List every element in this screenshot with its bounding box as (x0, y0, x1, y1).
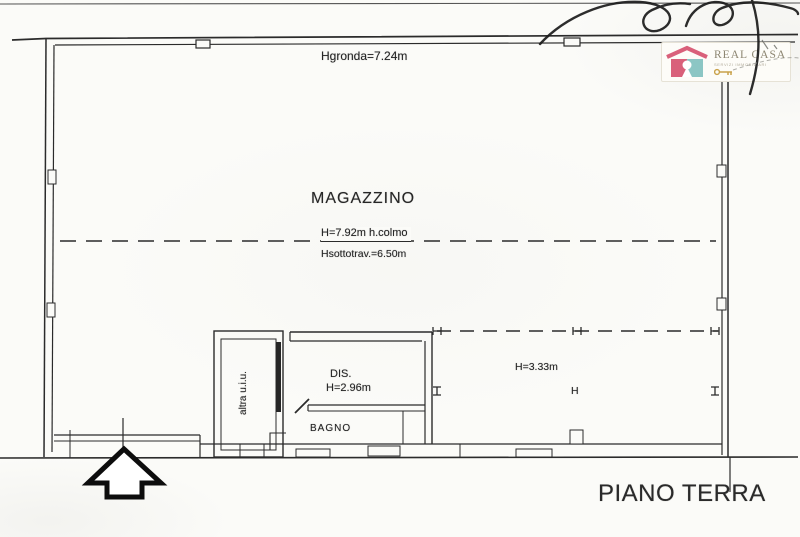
page-border-line (0, 3, 800, 4)
floor-title: PIANO TERRA (598, 480, 766, 508)
house-keyhole-icon (665, 45, 709, 79)
warehouse-room-label: MAGAZZINO (311, 190, 415, 208)
other-unit-label: altra u.i.u. (238, 354, 252, 432)
bottom-wall-openings (240, 430, 583, 458)
floor-plan-page: Hgronda=7.24m MAGAZZINO H=7.92m h.colmo … (0, 0, 800, 537)
bathroom-room-label: BAGNO (310, 423, 351, 435)
logo-brand-text: REAL CASA (714, 49, 786, 61)
eave-height-label: Hgronda=7.24m (321, 50, 407, 64)
logo-tagline-text: SERVIZI IMMOBILIARI (714, 62, 767, 67)
hallway-height-label: H=2.96m (326, 382, 371, 395)
building-outline (0, 35, 798, 493)
under-beam-height-label: Hsottotrav.=6.50m (321, 248, 406, 260)
agency-logo: REAL CASA SERVIZI IMMOBILIARI (661, 42, 791, 82)
hallway-room-label: DIS. (330, 368, 351, 381)
column-mark-label: H (571, 385, 579, 397)
entrance-arrow-icon (88, 449, 161, 497)
ridge-height-label: H=7.92m h.colmo (321, 227, 411, 242)
key-icon (714, 68, 734, 76)
right-area-height-label: H=3.33m (515, 361, 558, 373)
